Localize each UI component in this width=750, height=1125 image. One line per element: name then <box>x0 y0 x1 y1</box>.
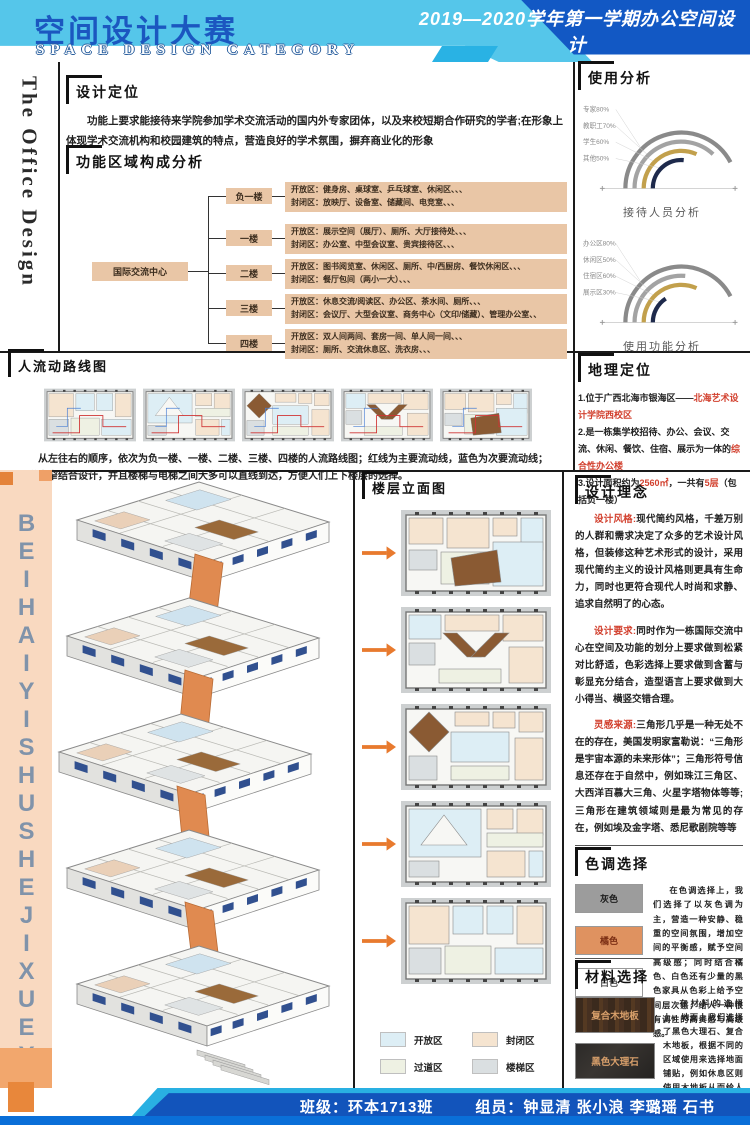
divider-v-rightcol-top <box>573 62 575 470</box>
tree-connector <box>208 196 226 197</box>
arrow-right-icon <box>362 546 396 560</box>
arrow-right-icon <box>362 643 396 657</box>
floor-plan-thumbnail <box>400 704 552 790</box>
concept-paragraphs: 设计风格:现代简约风格，千差万别的人群和需求决定了众多的艺术设计风格，但装修这种… <box>575 511 743 837</box>
chart-caption: 接待人员分析 <box>578 204 746 220</box>
tree-connector <box>272 273 285 274</box>
floor-plan-list <box>362 510 562 984</box>
geo-item: 1.位于广西北海市银海区——北海艺术设计学院西校区 <box>578 390 744 423</box>
arc-chart-function-usage: 办公区80%休闲区50%住宿区60%展示区30% <box>578 230 744 332</box>
tree-connector <box>272 308 285 309</box>
axonometric-building-drawing <box>53 472 353 1088</box>
tree-connector <box>208 238 226 239</box>
tree-leaf: 开放区：健身房、桌球室、乒乓球室、休闲区、、、封闭区：放映厅、设备室、储藏间、电… <box>285 182 567 212</box>
svg-text:专家80%: 专家80% <box>583 104 609 113</box>
divider-v-axon <box>353 470 355 1090</box>
section-design-positioning: 设计定位 功能上要求能接待来学院参加学术交流活动的国内外专家团体，以及来校短期合… <box>66 82 566 152</box>
section-function-analysis: 功能区域构成分析 国际交流中心负一楼开放区：健身房、桌球室、乒乓球室、休闲区、、… <box>66 152 571 362</box>
design-poster: 空间设计大赛 SPACE DESIGN CATEGORY 2019—2020学年… <box>0 0 750 1125</box>
section-title: 使用分析 <box>578 68 652 88</box>
svg-text:展示区30%: 展示区30% <box>583 288 616 296</box>
poster-title-en: SPACE DESIGN CATEGORY <box>36 42 360 59</box>
legend-swatch <box>472 1059 498 1074</box>
vertical-title-english: The Office Design <box>17 76 42 346</box>
legend-item: 过道区 <box>380 1059 464 1074</box>
section-title: 色调选择 <box>575 854 649 874</box>
footer-bottom-stripe <box>0 1116 750 1125</box>
section-title: 功能区域构成分析 <box>66 152 204 172</box>
elevation-row <box>362 510 562 596</box>
legend-swatch <box>472 1032 498 1047</box>
circulation-caption-line1: 从左往右的顺序，依次为负一楼、一楼、二楼、三楼、四楼的人流路线图；红线为主要流动… <box>18 451 558 468</box>
section-design-concept: 设计理念 设计风格:现代简约风格，千差万别的人群和需求决定了众多的艺术设计风格，… <box>575 482 743 837</box>
color-swatch: 橘色 <box>575 926 643 955</box>
arrow-right-icon <box>362 837 396 851</box>
legend-item: 楼梯区 <box>472 1059 556 1074</box>
legend-item: 开放区 <box>380 1032 464 1047</box>
class-label: 班级：环本1713班 <box>300 1096 433 1117</box>
section-title: 材料选择 <box>575 967 649 987</box>
tree-node: 二楼 <box>226 265 272 281</box>
left-vertical-strip-bottom: BEIHAIYISHUSHEJIXUEYUAN <box>0 470 52 1090</box>
tree-leaf: 开放区：图书阅览室、休闲区、厕所、中/西厨房、餐饮休闲区、、、封闭区：餐厅包间（… <box>285 259 567 289</box>
svg-text:办公区80%: 办公区80% <box>583 238 616 247</box>
vertical-title-pinyin: BEIHAIYISHUSHEJIXUEYUAN <box>12 510 40 1070</box>
tree-connector <box>208 308 226 309</box>
elevation-row <box>362 801 562 887</box>
concept-paragraph: 设计风格:现代简约风格，千差万别的人群和需求决定了众多的艺术设计风格，但装修这种… <box>575 511 743 614</box>
tree-connector <box>208 343 226 344</box>
arc-chart-reception: 专家80%教职工70%学生60%其他50% <box>578 96 744 198</box>
elevation-row <box>362 607 562 693</box>
tree-node: 国际交流中心 <box>92 262 188 281</box>
function-tree-diagram: 国际交流中心负一楼开放区：健身房、桌球室、乒乓球室、休闲区、、、封闭区：放映厅、… <box>66 182 571 362</box>
section-title: 地理定位 <box>578 360 652 380</box>
orange-square-decoration <box>0 472 13 485</box>
floor-plan-thumbnail <box>440 384 532 446</box>
section-title: 楼层立面图 <box>362 478 447 497</box>
tree-connector <box>272 343 285 344</box>
design-positioning-body: 功能上要求能接待来学院参加学术交流活动的国内外专家团体，以及来校短期合作研究的学… <box>66 112 566 152</box>
left-vertical-strip-top: The Office Design <box>0 62 58 351</box>
concept-paragraph: 设计要求:同时作为一栋国际交流中心在空间及功能的划分上要求做到松紧对比舒适，色彩… <box>575 623 743 708</box>
material-swatch: 黑色大理石 <box>575 1043 655 1079</box>
section-circulation: 人流动路线图 从左往右的顺序，依次为负一楼、一楼、二楼、三楼、四楼的人流路线图；… <box>8 356 568 485</box>
plan-legend: 开放区封闭区过道区楼梯区 <box>380 1032 556 1074</box>
tree-leaf: 开放区：展示空间（展厅）、厕所、大厅接待处、、、封闭区：办公室、中型会议室、贵宾… <box>285 224 567 254</box>
floor-plan-thumbnail <box>44 384 136 446</box>
elevation-row <box>362 704 562 790</box>
circulation-plan-row <box>8 384 568 446</box>
course-title: 2019—2020学年第一学期办公空间设计 <box>412 5 742 57</box>
arrow-right-icon <box>362 740 396 754</box>
geo-item: 2.是一栋集学校招待、办公、会议、交流、休闲、餐饮、住宿、展示为一体的综合性办公… <box>578 424 744 474</box>
svg-text:教职工70%: 教职工70% <box>583 121 616 130</box>
arrow-right-icon <box>362 934 396 948</box>
legend-item: 封闭区 <box>472 1032 556 1047</box>
tree-leaf: 开放区：双人间两间、套房一间、单人间一间、、、封闭区：厕所、交流休息区、洗衣房、… <box>285 329 567 359</box>
tree-node: 负一楼 <box>226 188 272 204</box>
section-title: 设计理念 <box>575 482 649 502</box>
svg-text:其他50%: 其他50% <box>583 153 609 162</box>
color-swatch: 灰色 <box>575 884 643 913</box>
tree-connector <box>272 196 285 197</box>
tree-connector <box>272 238 285 239</box>
orange-square-decoration <box>39 470 52 481</box>
header: 空间设计大赛 SPACE DESIGN CATEGORY 2019—2020学年… <box>0 0 750 62</box>
chart-caption: 使用功能分析 <box>578 338 746 354</box>
tree-node: 一楼 <box>226 230 272 246</box>
tree-node: 四楼 <box>226 335 272 351</box>
legend-swatch <box>380 1059 406 1074</box>
tree-node: 三楼 <box>226 300 272 316</box>
members-label: 组员：钟显清 张小浪 李璐瑶 石书 <box>475 1096 715 1117</box>
divider-v-leftstrip <box>58 62 60 351</box>
section-floor-elevation: 楼层立面图 <box>362 478 562 984</box>
legend-swatch <box>380 1032 406 1047</box>
floor-plan-thumbnail <box>400 510 552 596</box>
floor-plan-thumbnail <box>400 607 552 693</box>
floor-plan-thumbnail <box>242 384 334 446</box>
concept-paragraph: 灵感来源:三角形几乎是一种无处不在的存在，美国发明家富勒说：“三角形是宇宙本源的… <box>575 717 743 837</box>
footer: 班级：环本1713班 组员：钟显清 张小浪 李璐瑶 石书 <box>0 1088 750 1125</box>
floor-plan-thumbnail <box>400 801 552 887</box>
elevation-row <box>362 898 562 984</box>
tree-connector <box>208 196 209 344</box>
svg-text:住宿区60%: 住宿区60% <box>583 271 616 280</box>
section-title: 人流动路线图 <box>8 356 108 375</box>
orange-square-decoration <box>8 1082 34 1112</box>
svg-text:学生60%: 学生60% <box>583 137 609 146</box>
floor-plan-thumbnail <box>341 384 433 446</box>
section-usage-analysis: 使用分析 专家80%教职工70%学生60%其他50% 接待人员分析 办公区80%… <box>578 68 746 360</box>
floor-plan-thumbnail <box>400 898 552 984</box>
section-title: 设计定位 <box>66 82 140 102</box>
tree-leaf: 开放区：休息交流/阅读区、办公区、茶水间、厕所、、、封闭区：会议厅、大型会议室、… <box>285 294 567 324</box>
tree-connector <box>208 273 226 274</box>
divider-v-rightcol-bottom <box>562 470 564 1090</box>
material-swatch: 复合木地板 <box>575 997 655 1033</box>
tree-connector <box>188 271 208 272</box>
floor-plan-thumbnail <box>143 384 235 446</box>
svg-text:休闲区50%: 休闲区50% <box>583 255 616 264</box>
